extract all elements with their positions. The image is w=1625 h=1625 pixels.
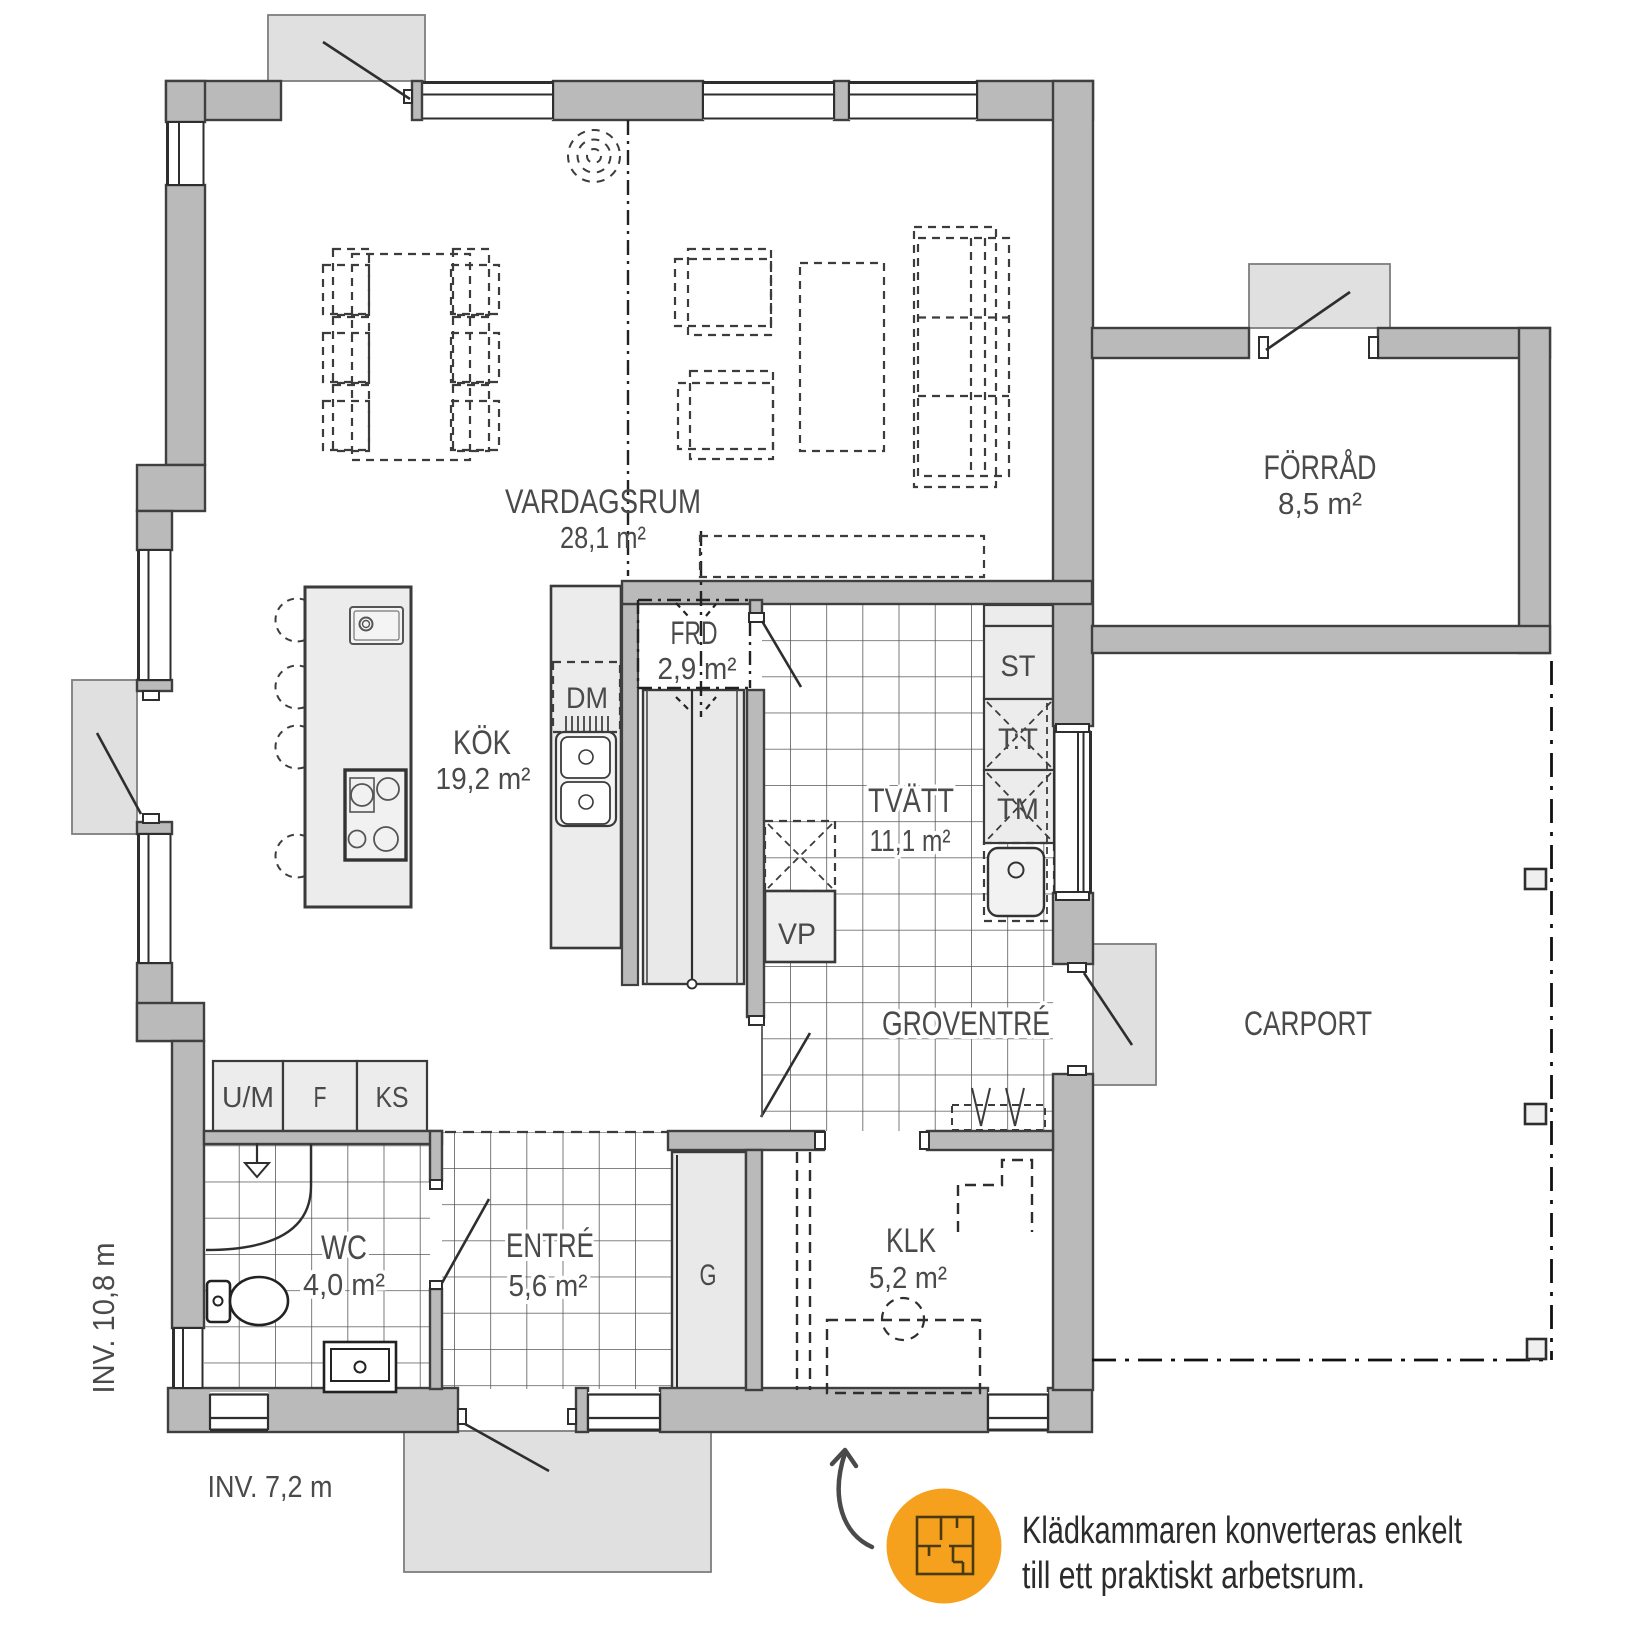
svg-text:19,2 m²: 19,2 m² bbox=[436, 761, 531, 796]
svg-text:till ett praktiskt arbetsrum.: till ett praktiskt arbetsrum. bbox=[1022, 1555, 1365, 1597]
svg-text:Klädkammaren konverteras enkel: Klädkammaren konverteras enkelt bbox=[1022, 1510, 1462, 1552]
svg-text:GROVENTRÉ: GROVENTRÉ bbox=[882, 1005, 1050, 1043]
svg-text:TM: TM bbox=[997, 793, 1039, 826]
svg-text:ENTRÉ: ENTRÉ bbox=[506, 1227, 594, 1265]
svg-text:KLK: KLK bbox=[886, 1222, 936, 1260]
svg-text:11,1 m²: 11,1 m² bbox=[870, 823, 951, 858]
svg-text:G: G bbox=[700, 1259, 717, 1292]
svg-text:T:T: T:T bbox=[998, 723, 1038, 756]
svg-text:DM: DM bbox=[566, 682, 608, 715]
svg-text:FRD: FRD bbox=[671, 615, 718, 651]
svg-text:INV. 10,8 m: INV. 10,8 m bbox=[86, 1243, 121, 1394]
svg-text:F: F bbox=[314, 1082, 327, 1114]
svg-text:U/M: U/M bbox=[222, 1082, 274, 1114]
svg-text:ST: ST bbox=[1001, 650, 1036, 683]
svg-text:TVÄTT: TVÄTT bbox=[868, 782, 954, 820]
svg-text:5,2 m²: 5,2 m² bbox=[869, 1260, 947, 1295]
svg-text:2,9 m²: 2,9 m² bbox=[658, 651, 737, 686]
svg-text:28,1 m²: 28,1 m² bbox=[560, 520, 646, 555]
svg-text:INV. 7,2 m: INV. 7,2 m bbox=[208, 1469, 333, 1504]
svg-text:FÖRRÅD: FÖRRÅD bbox=[1264, 449, 1377, 487]
svg-text:KS: KS bbox=[376, 1082, 409, 1114]
svg-text:CARPORT: CARPORT bbox=[1244, 1005, 1372, 1043]
svg-text:KÖK: KÖK bbox=[453, 724, 511, 762]
svg-text:VARDAGSRUM: VARDAGSRUM bbox=[505, 483, 701, 521]
svg-text:WC: WC bbox=[321, 1229, 367, 1267]
svg-text:VP: VP bbox=[778, 918, 816, 951]
svg-text:5,6 m²: 5,6 m² bbox=[509, 1268, 588, 1303]
svg-text:4,0 m²: 4,0 m² bbox=[303, 1267, 385, 1302]
svg-text:8,5 m²: 8,5 m² bbox=[1278, 486, 1362, 521]
